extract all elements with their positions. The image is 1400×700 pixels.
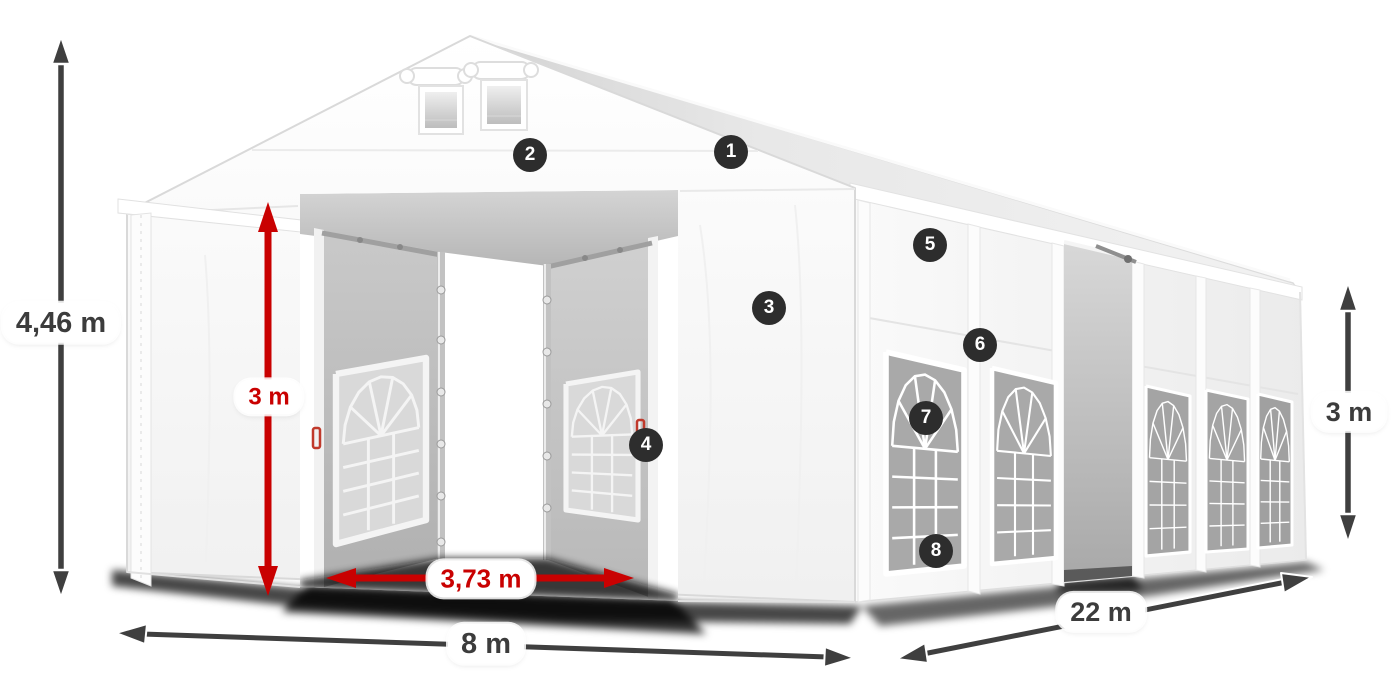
callout-badge-6: 6 [963,328,997,362]
tent-dimension-diagram: 4,46 m 3 m 3,73 m 8 m 22 m 3 m 1 2 3 4 5… [0,0,1400,700]
callout-badge-5: 5 [913,228,947,262]
dim-entrance-height-label: 3 m [235,379,302,414]
side-door-opening [1064,242,1136,582]
callout-badge-8: 8 [919,534,953,568]
callout-badge-2: 2 [513,138,547,172]
callout-badge-3: 3 [752,291,786,325]
dim-wall-height-label: 3 m [1313,393,1386,431]
callout-badge-4: 4 [629,428,663,462]
dim-total-height-label: 4,46 m [3,303,119,343]
callout-badge-7: 7 [909,401,943,435]
front-opening-interior [298,188,682,604]
dim-front-width-label: 8 m [448,624,524,664]
dim-side-length-label: 22 m [1057,593,1145,631]
dim-entrance-width-label: 3,73 m [428,560,535,597]
tent-illustration [0,0,1400,700]
callout-badge-1: 1 [714,135,748,169]
